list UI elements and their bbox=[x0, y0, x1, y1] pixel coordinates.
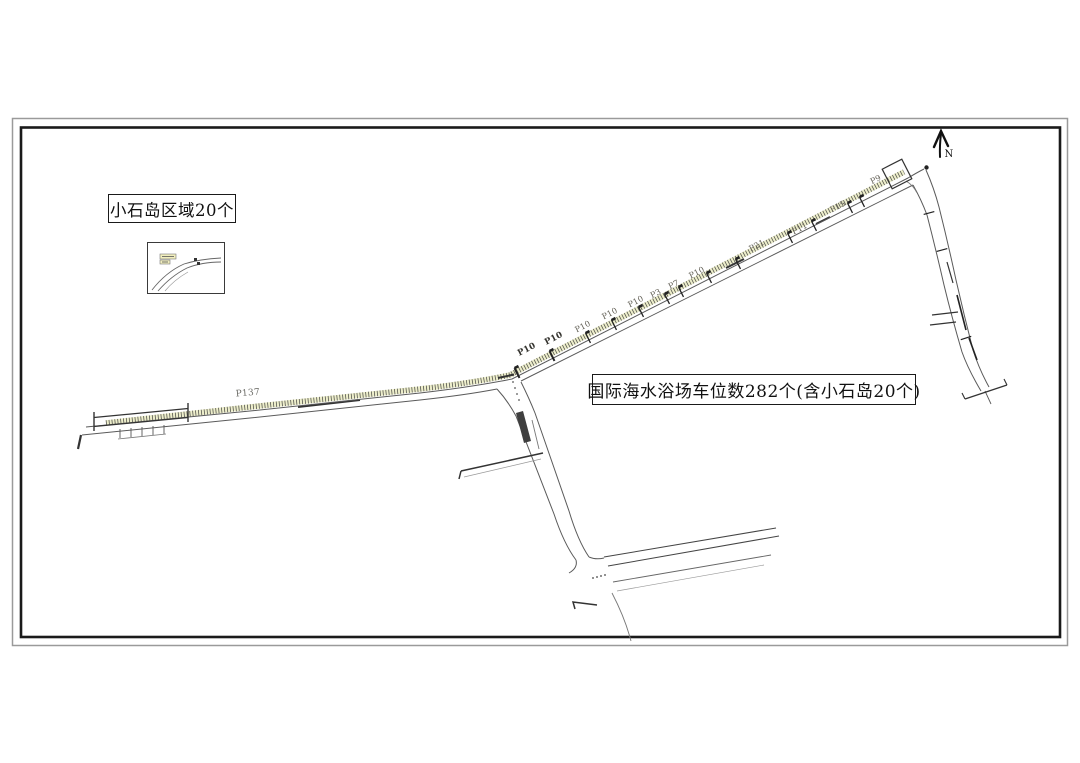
crosswalk-dots bbox=[512, 381, 520, 401]
bottom-intersection bbox=[573, 528, 779, 641]
north-arrow-icon: N bbox=[934, 131, 954, 160]
total-count-label: 国际海水浴场车位数282个(含小石岛20个) bbox=[587, 377, 920, 402]
inset-detail-box bbox=[147, 242, 225, 294]
road-marker-flag-icon bbox=[639, 305, 643, 307]
area-count-label: 小石岛区域20个 bbox=[110, 197, 234, 221]
road-marker-flag-icon bbox=[550, 349, 554, 351]
road-marker-flag-icon bbox=[515, 366, 519, 368]
total-count-box: 国际海水浴场车位数282个(含小石岛20个) bbox=[592, 374, 916, 405]
right-road bbox=[882, 159, 1007, 404]
road-marker-icon bbox=[788, 233, 793, 243]
parking-structure bbox=[516, 411, 531, 443]
road-marker-icon bbox=[937, 249, 948, 252]
road-marker-flag-icon bbox=[788, 231, 792, 233]
south-road bbox=[459, 381, 604, 573]
road-marker-flag-icon bbox=[736, 257, 740, 259]
road-marker-icon bbox=[924, 212, 935, 215]
road-marker-flag-icon bbox=[860, 195, 864, 197]
road-marker-flag-icon bbox=[665, 292, 669, 294]
road-marker-flag-icon bbox=[848, 201, 852, 203]
road-marker-flag-icon bbox=[707, 271, 711, 273]
area-count-box: 小石岛区域20个 bbox=[108, 194, 236, 223]
junction-dot bbox=[924, 165, 928, 169]
road-marker-flag-icon bbox=[612, 318, 616, 320]
road-marker-flag-icon bbox=[586, 331, 590, 333]
road-marker-flag-icon bbox=[812, 219, 816, 221]
road-marker-icon bbox=[812, 221, 817, 231]
drawing-sheet: N bbox=[0, 0, 1080, 763]
north-label: N bbox=[945, 149, 954, 160]
